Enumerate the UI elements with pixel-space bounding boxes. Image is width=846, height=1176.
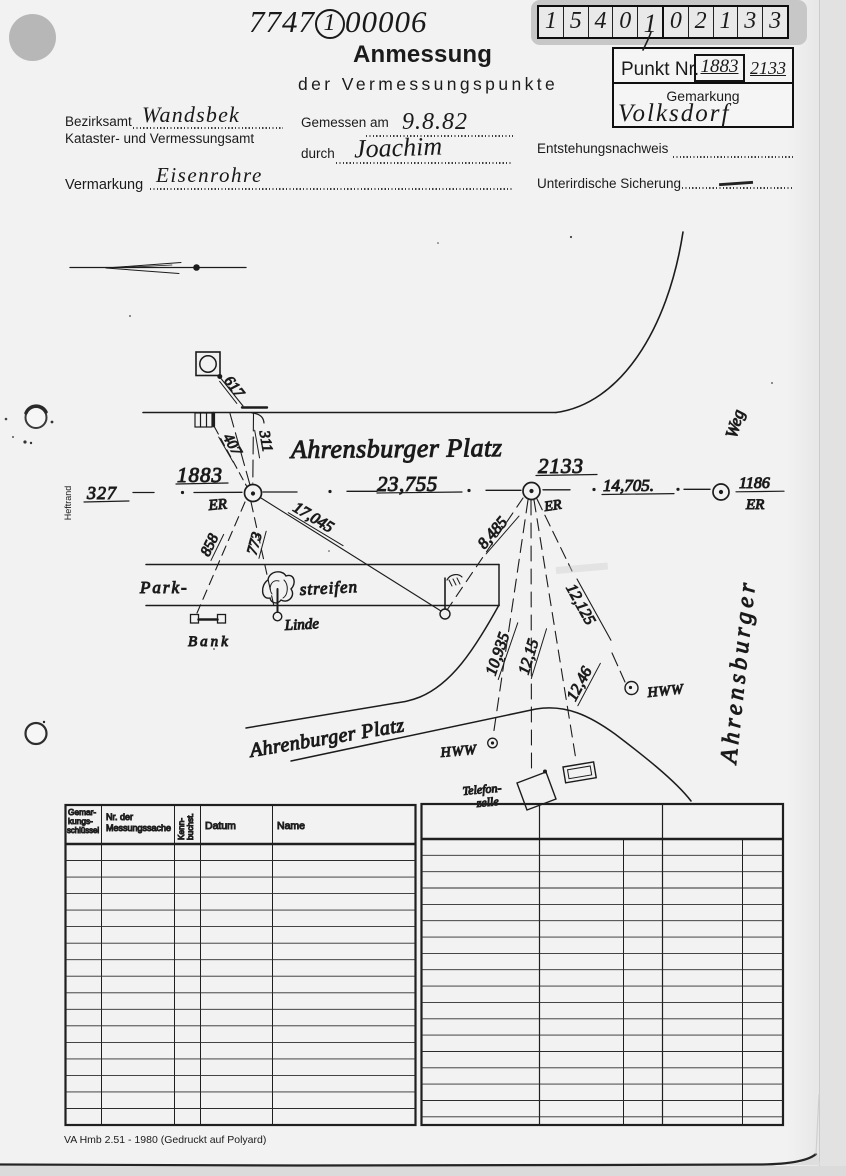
svg-text:kungs-: kungs- [68, 816, 93, 826]
svg-text:buchst.: buchst. [185, 813, 195, 840]
svg-text:Messungssache: Messungssache [106, 823, 171, 833]
svg-text:Datum: Datum [205, 820, 236, 832]
svg-text:schlüssel: schlüssel [67, 826, 99, 835]
svg-text:Nr. der: Nr. der [106, 812, 133, 822]
svg-text:Name: Name [277, 820, 305, 832]
